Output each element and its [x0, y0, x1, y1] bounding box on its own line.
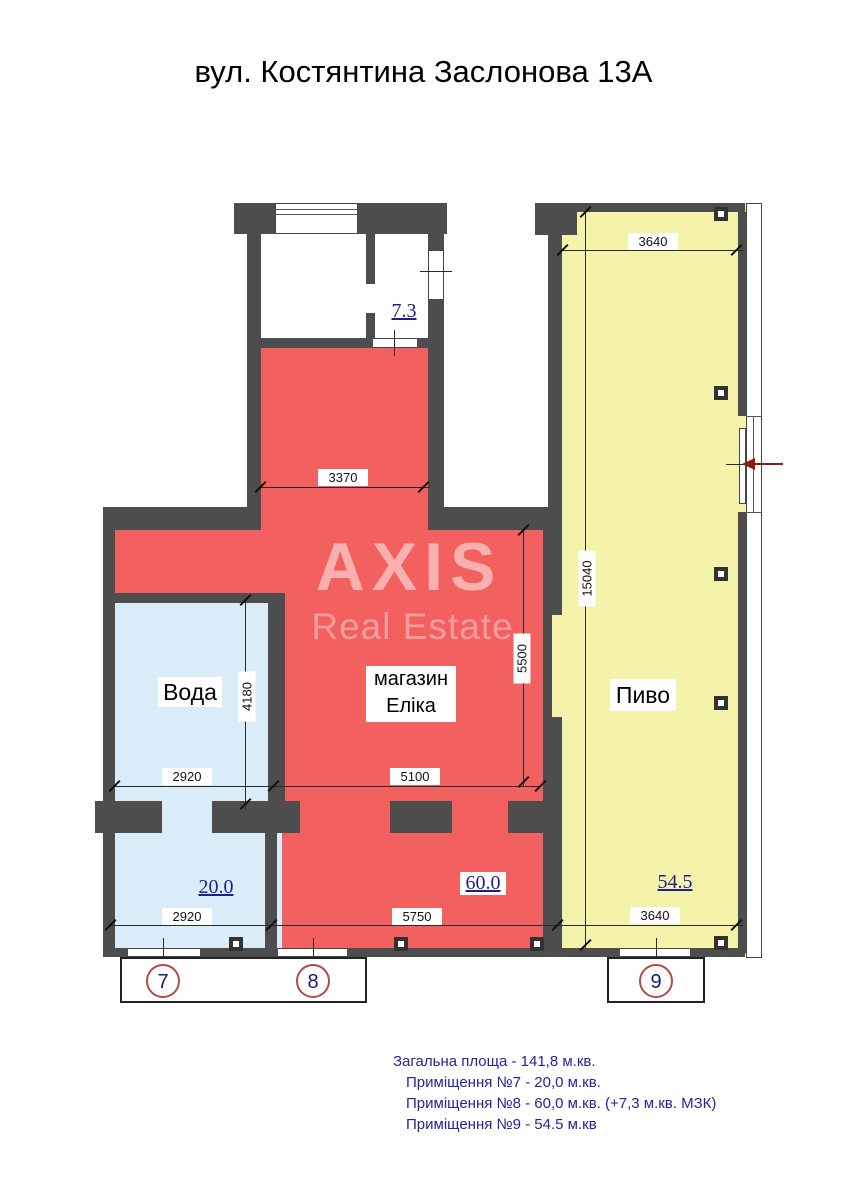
area-label-voda: 20.0 — [194, 876, 238, 899]
wall-segment — [358, 203, 447, 234]
wall-segment — [234, 203, 275, 234]
unit-number-9: 9 — [639, 964, 673, 998]
room-mzk — [247, 230, 432, 348]
column-marker — [229, 937, 243, 951]
room-shop-upper — [250, 340, 440, 535]
wall-segment — [103, 593, 285, 603]
facade-strip — [746, 203, 762, 958]
dimension-label: 2920 — [162, 768, 212, 785]
page-title: вул. Костянтина Заслонова 13А — [0, 54, 847, 90]
room-label-voda: Вода — [158, 677, 222, 707]
column-marker — [714, 207, 728, 221]
column-marker — [714, 567, 728, 581]
facade-divider — [746, 416, 762, 417]
area-label-mzk: 7.3 — [386, 300, 422, 323]
watermark-brand: AXIS — [293, 528, 525, 606]
column-marker — [714, 386, 728, 400]
summary-total: Загальна площа - 141,8 м.кв. — [393, 1051, 716, 1072]
column-marker — [394, 937, 408, 951]
wall-segment — [95, 801, 162, 833]
dimension-label: 3640 — [628, 233, 678, 250]
room-label-shop-line2: Еліка — [366, 693, 456, 720]
wall-segment — [738, 212, 746, 416]
wall-segment — [428, 299, 444, 513]
summary-unit-7: Приміщення №7 - 20,0 м.кв. — [393, 1072, 716, 1093]
summary-unit-8: Приміщення №8 - 60,0 м.кв. (+7,3 м.кв. М… — [393, 1093, 716, 1114]
window-glass-line — [276, 214, 357, 215]
room-label-shop: магазин Еліка — [366, 666, 456, 722]
summary-unit-9: Приміщення №9 - 54.5 м.кв — [393, 1114, 716, 1135]
entrance-arrow-stem — [755, 463, 783, 465]
wall-segment — [103, 507, 260, 530]
watermark-subtitle: Real Estate — [295, 606, 530, 648]
dimension-line — [562, 250, 743, 251]
wall-segment — [428, 234, 444, 251]
dimension-label: 15040 — [579, 551, 596, 607]
room-label-shop-line1: магазин — [366, 666, 456, 693]
dimension-line — [260, 487, 430, 488]
door-tick — [420, 271, 452, 272]
unit-number-7: 7 — [146, 964, 180, 998]
dimension-label: 4180 — [239, 672, 256, 722]
dimension-label: 2920 — [162, 908, 212, 925]
wall-segment — [247, 338, 373, 348]
dimension-label: 5500 — [514, 634, 531, 684]
door-opening — [373, 338, 417, 348]
dimension-label: 5750 — [392, 908, 442, 925]
area-label-shop: 60.0 — [460, 872, 506, 895]
dimension-label: 5100 — [390, 768, 440, 785]
wall-segment — [428, 507, 562, 530]
window-glass-line — [276, 209, 357, 210]
room-label-pivo: Пиво — [610, 679, 676, 711]
dimension-label: 3640 — [630, 907, 680, 924]
area-label-pivo: 54.5 — [653, 871, 697, 894]
floor-plan-page: вул. Костянтина Заслонова 13А AXIS Real … — [0, 0, 847, 1200]
wall-segment — [543, 615, 552, 717]
column-block — [390, 801, 452, 833]
door-tick — [394, 330, 395, 356]
entrance-7 — [128, 948, 200, 957]
unit-number-8: 8 — [296, 964, 330, 998]
entrance-9 — [620, 948, 690, 957]
summary-block: Загальна площа - 141,8 м.кв. Приміщення … — [393, 1051, 716, 1135]
column-marker — [714, 936, 728, 950]
door-opening — [428, 251, 444, 299]
facade-divider — [746, 512, 762, 513]
wall-segment — [548, 235, 562, 507]
wall-segment — [543, 717, 562, 948]
wall-segment — [417, 338, 444, 348]
dimension-label: 3370 — [318, 469, 368, 486]
dimension-line — [114, 786, 541, 787]
wall-segment — [543, 530, 562, 615]
wall-segment — [103, 530, 115, 598]
entrance-arrow-icon — [742, 458, 755, 470]
dimension-line — [110, 925, 743, 926]
wall-segment — [268, 603, 285, 801]
wall-segment — [212, 801, 300, 833]
wall-segment — [738, 512, 746, 953]
window — [275, 203, 358, 234]
column-marker — [714, 696, 728, 710]
column-marker — [530, 937, 544, 951]
wall-segment — [265, 833, 277, 957]
wall-segment — [103, 603, 115, 957]
wall-segment — [366, 234, 375, 284]
